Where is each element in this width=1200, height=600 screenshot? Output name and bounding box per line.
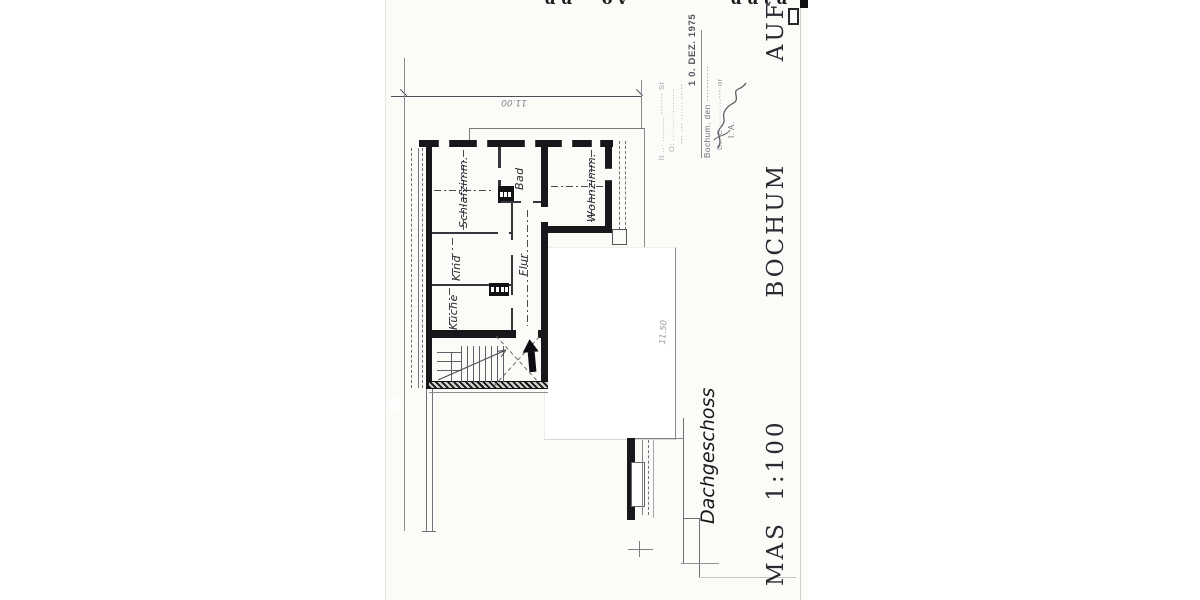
wall-left xyxy=(426,140,432,389)
stamp-faint-line-3: --- ·-- ······ --·-- xyxy=(677,36,686,144)
wall-bottom-underline xyxy=(429,392,548,393)
boundary-step-v xyxy=(699,518,700,577)
dimension-extension-right xyxy=(641,80,642,128)
partition-hall-a xyxy=(511,202,513,240)
scan-corner-mark xyxy=(800,0,808,8)
lower-detail-line-2 xyxy=(653,440,654,518)
partition-bath-south-b xyxy=(533,201,541,203)
partition-child-kitchen-b xyxy=(509,284,511,286)
roof-edge-vertical xyxy=(644,128,645,247)
partition-bath-west-a xyxy=(498,147,501,168)
gable-foot-tick xyxy=(422,531,436,532)
wall-top xyxy=(419,140,613,147)
paper-patch xyxy=(544,247,676,440)
chimney-flue xyxy=(504,192,507,197)
window-opening xyxy=(605,168,612,181)
wall-l-corner xyxy=(548,226,612,233)
cut-title-glyph xyxy=(788,8,799,25)
arrow-head xyxy=(522,338,539,352)
room-label-wohnzimmer: Wohnzimm. xyxy=(585,142,598,222)
room-label-kind: Kind xyxy=(450,237,463,281)
lower-detail-line-1 xyxy=(642,440,643,515)
chimney-flue xyxy=(500,192,503,197)
roof-edge-line xyxy=(469,128,644,129)
window-opening xyxy=(438,140,450,147)
stamp-date: 1 0. DEZ. 1975 xyxy=(687,26,698,86)
stair-direction-arrow xyxy=(522,338,541,372)
survey-cross-h xyxy=(628,549,653,550)
partition-bedroom-child-a xyxy=(432,232,498,234)
chimney-flue xyxy=(508,192,511,197)
chimney-flue xyxy=(501,287,504,292)
gable-line-left-b xyxy=(432,389,433,531)
lower-detail-dashed xyxy=(648,440,649,515)
window-opening xyxy=(561,140,573,147)
page-edge-line xyxy=(800,0,801,600)
partition-bedroom-child-b xyxy=(509,232,511,234)
boundary-tick xyxy=(681,563,719,564)
punch-hole xyxy=(388,398,401,411)
partition-hall-c xyxy=(511,308,513,330)
room-label-flur: Flur xyxy=(517,238,530,276)
roof-dashed-line-1 xyxy=(619,141,620,240)
roof-strip-dashed-2 xyxy=(422,148,423,388)
gable-line-left-a xyxy=(426,389,427,531)
chimney-flue xyxy=(505,287,508,292)
stamp-faint-line-1: lt ..· ......... ---·--- St xyxy=(657,25,666,160)
arrow-shaft xyxy=(527,352,536,373)
drawing-title: MAS 1:100 BOCHUM AUF DEM DAHL, xyxy=(763,16,797,586)
chimney-block-kitchen xyxy=(489,283,509,296)
survey-cross-v xyxy=(639,541,640,557)
approval-signature xyxy=(711,80,751,152)
scanned-floorplan-screenshot: uu ov uutu uuruxuuv o 11.00 xyxy=(0,0,1200,600)
window-opening xyxy=(476,140,488,147)
window-opening xyxy=(524,140,536,147)
boundary-line-vertical xyxy=(683,418,684,563)
roof-strip-solid xyxy=(418,148,419,388)
door-opening xyxy=(541,207,548,222)
dimension-label-width: 11.00 xyxy=(492,97,536,107)
roof-dashed-line-2 xyxy=(625,141,626,240)
lower-detail-topline xyxy=(634,438,683,439)
chimney-flue xyxy=(491,287,494,292)
chimney-flue xyxy=(496,287,499,292)
paper-page: uu ov uutu uuruxuuv o 11.00 xyxy=(385,0,808,600)
roof-strip-dashed-1 xyxy=(411,148,412,388)
partition-hall-b xyxy=(511,255,513,295)
room-label-schlafzimmer: Schlafzimm. xyxy=(457,143,470,228)
stamp-faint-line-2: O: ...·....·.......... xyxy=(667,30,676,152)
roof-edge-stub xyxy=(469,128,470,140)
floor-label: Dachgeschoss xyxy=(697,389,719,524)
balcony-step-outline xyxy=(612,229,627,245)
stamp-rule-line xyxy=(701,30,702,158)
room-label-bad: Bad xyxy=(513,150,526,190)
dimension-extension-left xyxy=(404,58,405,531)
room-label-kueche: Küche xyxy=(447,282,460,330)
wall-right-upper xyxy=(605,140,612,233)
